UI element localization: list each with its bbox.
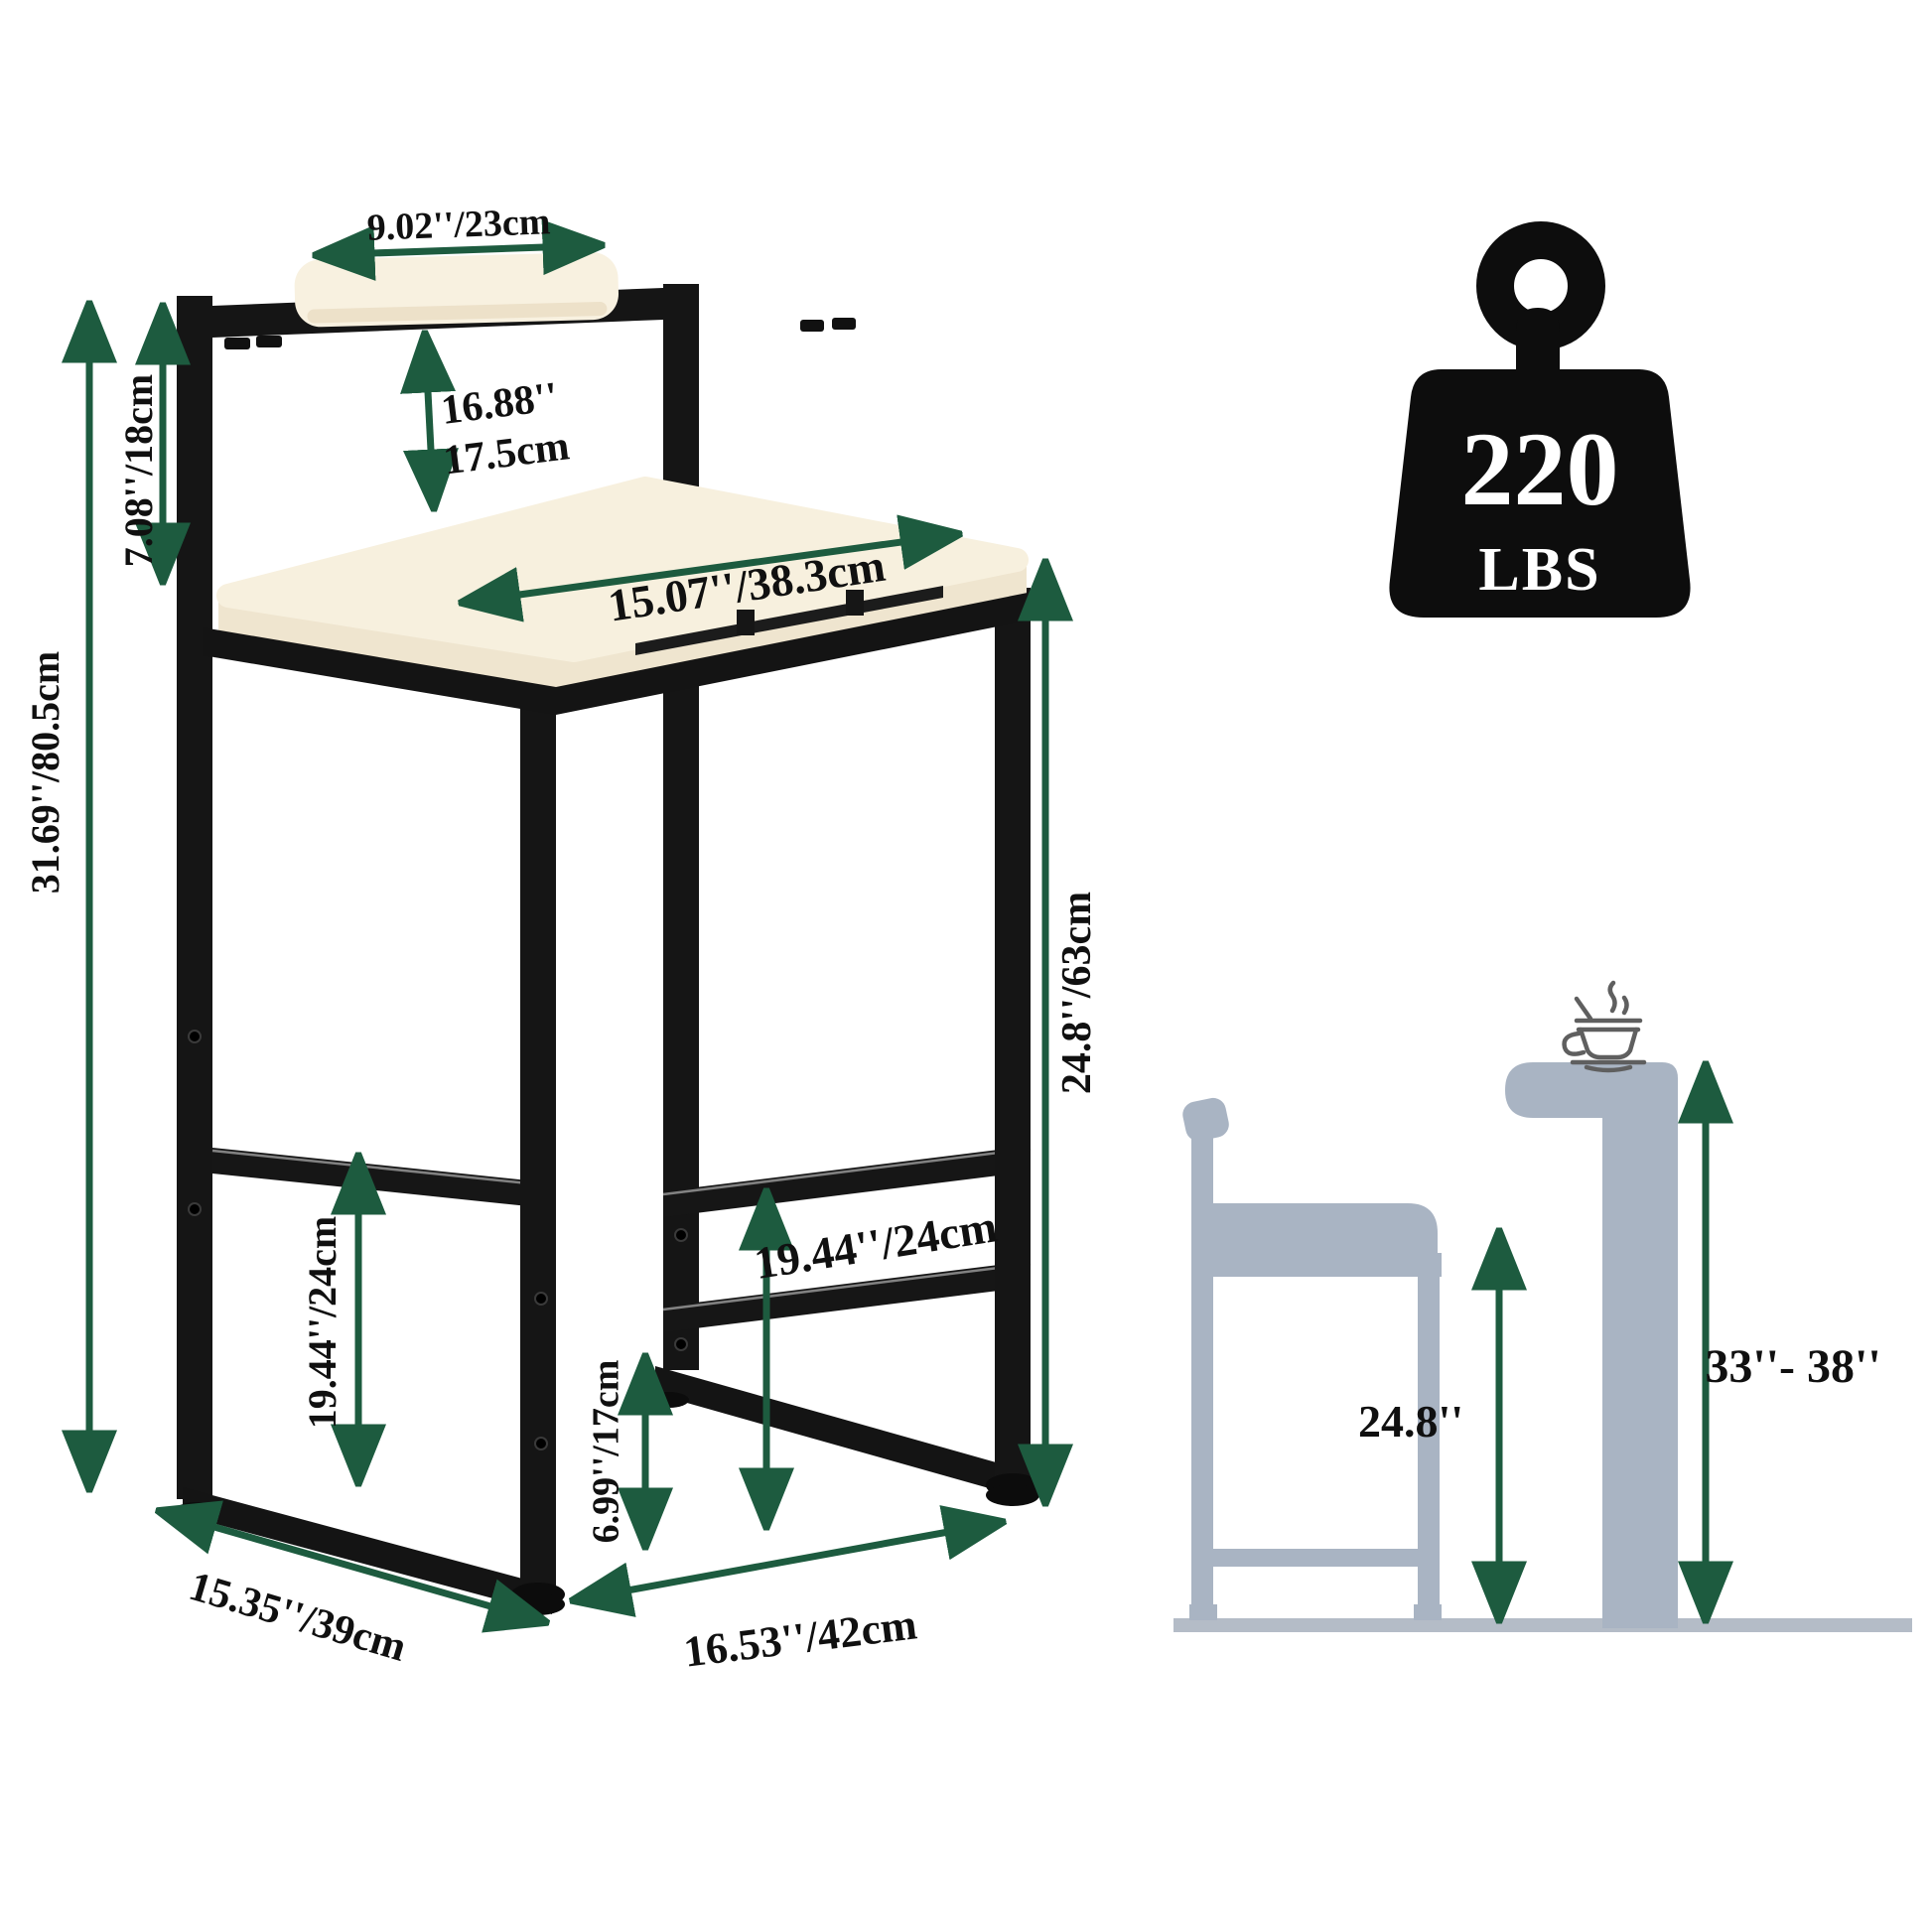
arrow-base-width <box>573 1522 1003 1600</box>
backrest-height-label: 7.08''/18cm <box>116 374 161 567</box>
counter-silhouette <box>1505 1062 1678 1628</box>
silhouette-rear-leg <box>1191 1118 1213 1618</box>
silhouette-seat-height-label: 24.8'' <box>1358 1396 1463 1447</box>
stool-right-bottom-rail <box>655 1366 1021 1497</box>
silhouette-front-leg <box>1418 1277 1440 1618</box>
coffee-cup-icon <box>1565 983 1644 1070</box>
seat-bracket-left <box>737 610 755 635</box>
footrest-left-label: 19.44''/24cm <box>300 1216 345 1429</box>
silhouette-seat-frame <box>1191 1253 1442 1277</box>
base-depth-label: 15.35''/39cm <box>184 1564 411 1671</box>
counter-height-label: 33''- 38'' <box>1705 1340 1880 1393</box>
diagram-canvas: 9.02''/23cm 7.08''/18cm 16.88'' 17.5cm 1… <box>0 0 1932 1932</box>
backrest-to-seat-inch-label: 16.88'' <box>439 374 561 434</box>
counter-column <box>1602 1118 1678 1628</box>
silhouette-front-foot <box>1414 1604 1442 1620</box>
base-width-label: 16.53''/42cm <box>681 1599 919 1676</box>
overall-height-label: 31.69''/80.5cm <box>23 651 68 894</box>
product-dimension-diagram: 9.02''/23cm 7.08''/18cm 16.88'' 17.5cm 1… <box>0 0 1932 1932</box>
seat-height-label: 24.8''/63cm <box>1054 892 1100 1094</box>
stool-left-stretcher <box>212 1148 538 1207</box>
ground-line <box>1173 1618 1912 1632</box>
silhouette-rear-foot <box>1189 1604 1217 1620</box>
weight-unit: LBS <box>1478 536 1600 604</box>
footrest-to-floor-label: 6.99''/17cm <box>586 1360 627 1544</box>
arrow-backrest-to-seat <box>425 334 434 508</box>
stool-silhouette <box>1180 1095 1442 1620</box>
weight-capacity-icon: 220 LBS <box>1389 240 1690 618</box>
backrest-width-label: 9.02''/23cm <box>366 201 551 248</box>
stool-left-rear-leg <box>177 296 212 1499</box>
stool-front-right-leg <box>995 588 1031 1481</box>
weight-icon-neck <box>1516 308 1560 373</box>
height-comparison-diagram: 24.8'' 33''- 38'' <box>1173 983 1912 1632</box>
backrest-to-seat-cm-label: 17.5cm <box>441 423 572 483</box>
stool-front-left-leg <box>520 679 556 1590</box>
backrest-cushion <box>294 251 620 328</box>
weight-value: 220 <box>1461 411 1619 527</box>
silhouette-stretcher <box>1213 1549 1418 1567</box>
silhouette-seat <box>1213 1203 1438 1255</box>
